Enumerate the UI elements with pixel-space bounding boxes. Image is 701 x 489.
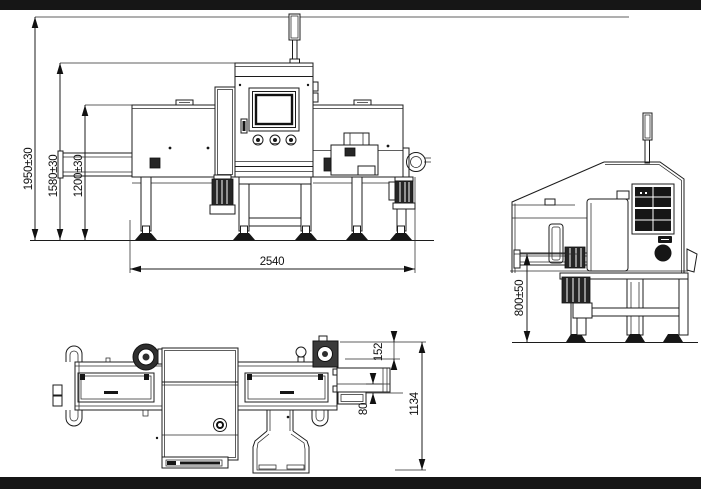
dim-overall-height-label: 1950±30 bbox=[23, 148, 35, 191]
vent-detail bbox=[150, 158, 160, 168]
bottom-letterbox-bar bbox=[0, 477, 701, 489]
side-view: 800±50 bbox=[510, 113, 698, 343]
side-beacon-light bbox=[643, 113, 652, 163]
side-motor bbox=[562, 277, 592, 335]
machine-drawing: 1950±30 1580±30 1200±30 2540 bbox=[0, 0, 701, 489]
cabinet-stand bbox=[239, 177, 311, 231]
dim-outfeed-offset-label: 152 bbox=[373, 343, 385, 361]
drive-motor-right bbox=[389, 177, 415, 209]
infeed-extension bbox=[58, 151, 133, 178]
beacon-light bbox=[289, 14, 300, 63]
plan-motor-right bbox=[313, 336, 338, 367]
tunnel-side-panel bbox=[215, 87, 235, 177]
drawing-canvas: 1950±30 1580±30 1200±30 2540 bbox=[0, 0, 701, 489]
infeed-cover bbox=[132, 100, 215, 177]
top-view: 152 80 1134 bbox=[53, 333, 426, 473]
dim-belt-edge-label: 80 bbox=[358, 403, 370, 415]
vent-fan bbox=[655, 245, 672, 262]
control-cabinet bbox=[235, 63, 318, 177]
dim-overall-width-label: 1134 bbox=[409, 391, 421, 415]
plan-outfeed bbox=[333, 368, 390, 404]
plan-cabinet bbox=[156, 348, 238, 468]
dim-overall-length-label: 2540 bbox=[260, 256, 284, 268]
dim-belt-height-label: 800±50 bbox=[514, 280, 526, 317]
side-door-panel bbox=[617, 184, 674, 262]
legs-front bbox=[135, 177, 412, 240]
top-letterbox-bar bbox=[0, 0, 701, 10]
hmi-screen bbox=[249, 88, 299, 131]
end-roller bbox=[403, 148, 431, 177]
side-label-plate bbox=[617, 191, 629, 199]
front-view: 1950±30 1580±30 1200±30 2540 bbox=[23, 14, 629, 273]
reject-chute bbox=[253, 410, 309, 473]
side-inner-structure bbox=[514, 199, 628, 271]
drive-motor-left bbox=[210, 175, 235, 214]
side-flap bbox=[687, 249, 697, 272]
